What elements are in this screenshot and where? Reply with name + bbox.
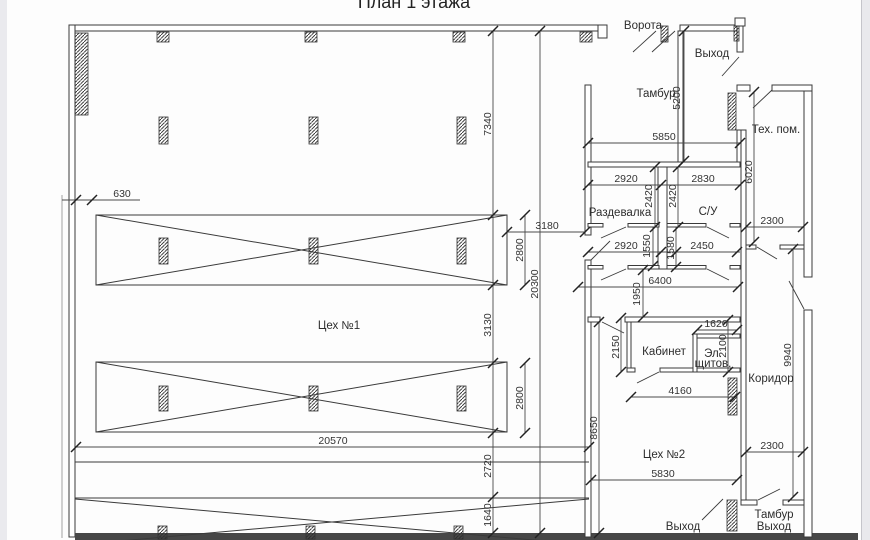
- dim-5850: 5850: [652, 131, 676, 143]
- dim-20300: 20300: [529, 269, 541, 298]
- dim-2150: 2150: [610, 335, 622, 359]
- room-label-office: Кабинет: [642, 346, 686, 358]
- column: [159, 238, 168, 264]
- room-label-tambour-top: Тамбур: [636, 88, 675, 100]
- wall-pier: [728, 93, 736, 130]
- tambour-exit-label-line2: Выход: [757, 521, 792, 533]
- dim-8650: 8650: [588, 416, 600, 440]
- dim-2920-lower: 2920: [614, 240, 638, 252]
- dim-1640: 1640: [482, 503, 494, 527]
- dim-2420-left: 2420: [643, 184, 655, 208]
- dim-1550: 1550: [641, 234, 653, 258]
- wall-pier: [727, 500, 737, 531]
- dim-2300-upper: 2300: [760, 215, 784, 227]
- dim-20570: 20570: [318, 435, 347, 447]
- column: [457, 386, 466, 411]
- dim-6020: 6020: [743, 160, 755, 184]
- floor-plan-page: План 1 этажа: [0, 0, 870, 540]
- dim-2800-upper: 2800: [514, 238, 526, 262]
- dim-5830: 5830: [651, 468, 675, 480]
- column: [457, 117, 466, 144]
- dimension-labels-vertical: 7340 2800 20300 3130 2800 2720 1640 8650…: [482, 86, 794, 527]
- dim-2300-lower: 2300: [760, 440, 784, 452]
- room-label-bathroom: С/У: [699, 206, 719, 218]
- room-label-dressing: Раздевалка: [589, 207, 652, 219]
- wall-pier: [734, 26, 739, 41]
- page-left-edge: [0, 0, 7, 540]
- dim-5200: 5200: [671, 86, 683, 110]
- dim-2720: 2720: [482, 454, 494, 478]
- interior-walls: [585, 18, 812, 537]
- room-label-workshop2: Цех №2: [643, 449, 685, 461]
- dim-630: 630: [113, 188, 131, 200]
- column: [159, 386, 168, 411]
- column: [159, 117, 168, 144]
- dim-2800-lower: 2800: [514, 386, 526, 410]
- column: [309, 238, 318, 264]
- dim-9940: 9940: [782, 343, 794, 367]
- dim-3130: 3130: [482, 313, 494, 337]
- column: [580, 32, 592, 42]
- dim-2450: 2450: [690, 240, 714, 252]
- column: [305, 32, 317, 42]
- outer-walls: [69, 25, 858, 540]
- dim-2420-right: 2420: [667, 184, 679, 208]
- dim-3180: 3180: [535, 220, 559, 232]
- page-right-edge: [862, 0, 870, 540]
- wall-pier: [75, 33, 88, 115]
- dim-4160: 4160: [668, 385, 692, 397]
- dim-1950: 1950: [631, 282, 643, 306]
- room-label-workshop1: Цех №1: [318, 320, 360, 332]
- crossed-zones: [75, 215, 589, 540]
- dimension-labels-horizontal: 630 3180 20570 5850 2920 2830 2920 2450 …: [113, 131, 784, 480]
- room-label-tech: Тех. пом.: [752, 124, 800, 136]
- column: [306, 526, 315, 539]
- plan-title: План 1 этажа: [358, 0, 471, 12]
- dim-2920-upper: 2920: [614, 173, 638, 185]
- dim-2100: 2100: [717, 334, 729, 358]
- exit-top-label: Выход: [695, 48, 730, 60]
- column: [157, 32, 169, 42]
- dim-2830: 2830: [691, 173, 715, 185]
- dim-6400: 6400: [648, 275, 672, 287]
- exit-bottom-label: Выход: [666, 521, 701, 533]
- tambour-exit-label-line1: Тамбур: [754, 509, 793, 521]
- room-label-panel-line2: щитов.: [695, 358, 732, 370]
- floor-plan-drawing: План 1 этажа: [0, 0, 870, 540]
- column: [457, 238, 466, 264]
- column: [309, 117, 318, 144]
- dim-1620: 1620: [704, 318, 728, 330]
- column: [454, 526, 463, 539]
- column: [453, 32, 465, 42]
- gate-label: Ворота: [624, 20, 663, 32]
- dim-1580: 1580: [665, 236, 677, 260]
- dim-7340: 7340: [482, 112, 494, 136]
- dimension-ticks: [71, 26, 808, 538]
- room-label-corridor: Коридор: [748, 373, 793, 385]
